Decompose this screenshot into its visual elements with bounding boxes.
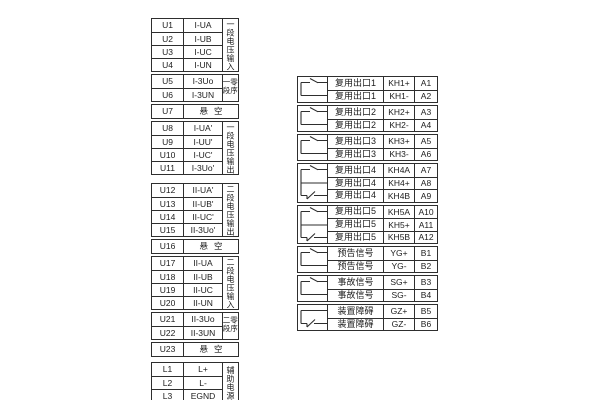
terminal-group-voltage1-in: U1I-UA U2I-UB U3I-UC U4I-UN 一段电压输入 <box>151 18 239 72</box>
terminal-row: U1I-UA <box>152 19 222 32</box>
warning-signal-group: 预告信号YG+B1 预告信号YG-B2 <box>297 246 438 273</box>
group-side-label: 辅助电源 <box>222 363 237 400</box>
signal-name: I-UU' <box>184 135 222 148</box>
terminal-row: U3I-UC <box>152 45 222 58</box>
output-label: 预告信号 <box>328 260 384 273</box>
terminal-id: A2 <box>415 90 437 103</box>
terminal-row: U15II-3Uo' <box>152 223 222 236</box>
output-label: 复用出口4 <box>328 189 384 202</box>
group-rows: 装置障碍GZ+B5 装置障碍GZ-B6 <box>328 305 437 330</box>
terminal-group-zeroseq1: U5I-3Uo U6I-3UN 一段零序 <box>151 74 239 102</box>
terminal-id: A7 <box>415 164 437 177</box>
terminal-row: 预告信号YG+B1 <box>328 247 437 260</box>
terminal-id: U8 <box>152 122 184 135</box>
output-group-3: 复用出口3KH3+A5 复用出口3KH3-A6 <box>297 134 438 161</box>
group-rows: U5I-3Uo U6I-3UN <box>152 75 222 101</box>
signal-name: I-UA <box>184 19 222 32</box>
signal-name: I-UB <box>184 32 222 45</box>
signal-code: KH5A <box>384 206 415 219</box>
terminal-id: U22 <box>152 326 184 339</box>
signal-code: KH5+ <box>384 218 415 231</box>
terminal-row: U23悬空 <box>152 343 238 356</box>
terminal-id: U11 <box>152 161 184 174</box>
terminal-id: A5 <box>415 135 437 148</box>
terminal-row: 装置障碍GZ+B5 <box>328 305 437 318</box>
signal-code: GZ- <box>384 318 415 331</box>
signal-name: II-3Uo <box>184 313 222 326</box>
terminal-id: A9 <box>415 189 437 202</box>
terminal-id: U7 <box>152 105 184 118</box>
terminal-id: U5 <box>152 75 184 88</box>
terminal-row: L3EGND <box>152 389 222 400</box>
terminal-group-spare-u23: U23悬空 <box>151 342 239 357</box>
terminal-id: U15 <box>152 223 184 236</box>
terminal-row: 复用出口5KH5AA10 <box>328 206 437 219</box>
terminal-id: U18 <box>152 270 184 283</box>
terminal-row: L2L- <box>152 376 222 389</box>
no-contact-icon <box>298 247 328 272</box>
signal-code: KH4A <box>384 164 415 177</box>
terminal-id: U4 <box>152 58 184 71</box>
side-label-text: 二段电压输出 <box>226 185 234 236</box>
group-rows: 复用出口3KH3+A5 复用出口3KH3-A6 <box>328 135 437 160</box>
signal-name: II-UA' <box>184 184 222 197</box>
signal-name: 悬空 <box>184 105 238 118</box>
output-label: 复用出口4 <box>328 164 384 177</box>
terminal-id: U12 <box>152 184 184 197</box>
terminal-row: 复用出口3KH3+A5 <box>328 135 437 148</box>
terminal-row: 事故信号SG+B3 <box>328 276 437 289</box>
signal-name: II-UC' <box>184 210 222 223</box>
fault-signal-group: 事故信号SG+B3 事故信号SG-B4 <box>297 275 438 302</box>
output-label: 事故信号 <box>328 276 384 289</box>
group-rows: U1I-UA U2I-UB U3I-UC U4I-UN <box>152 19 222 71</box>
device-failure-group: 装置障碍GZ+B5 装置障碍GZ-B6 <box>297 304 438 331</box>
output-label: 预告信号 <box>328 247 384 260</box>
side-label-text: 二段电压输入 <box>226 258 234 309</box>
no-contact-icon <box>298 77 328 102</box>
signal-name: II-UA <box>184 257 222 270</box>
group-side-label: 一段电压输入 <box>222 19 237 71</box>
signal-code: KH3+ <box>384 135 415 148</box>
terminal-id: U3 <box>152 45 184 58</box>
terminal-row: U22II-3UN <box>152 326 222 339</box>
terminal-group-voltage2-in: U17II-UA U18II-UB U19II-UC U20II-UN 二段电压… <box>151 256 239 310</box>
output-group-1: 复用出口1KH1+A1 复用出口1KH1-A2 <box>297 76 438 103</box>
terminal-row: U10I-UC' <box>152 148 222 161</box>
group-side-label: 一段电压输出 <box>222 122 237 174</box>
group-rows: U12II-UA' U13II-UB' U14II-UC' U15II-3Uo' <box>152 184 222 236</box>
terminal-row: U19II-UC <box>152 283 222 296</box>
signal-code: SG+ <box>384 276 415 289</box>
signal-code: KH2+ <box>384 106 415 119</box>
terminal-id: L1 <box>152 363 184 376</box>
signal-name: I-3Uo <box>184 75 222 88</box>
output-label: 事故信号 <box>328 289 384 302</box>
terminal-id: B3 <box>415 276 437 289</box>
signal-name: EGND <box>184 389 222 400</box>
terminal-row: U5I-3Uo <box>152 75 222 88</box>
output-label: 复用出口5 <box>328 231 384 244</box>
side-label-text: 一段电压输出 <box>226 123 234 174</box>
terminal-row: U17II-UA <box>152 257 222 270</box>
terminal-id: B6 <box>415 318 437 331</box>
signal-code: YG+ <box>384 247 415 260</box>
group-side-label: 二段零序 <box>222 313 237 339</box>
nc-contact-icon <box>298 305 328 330</box>
terminal-id: A4 <box>415 119 437 132</box>
group-rows: U17II-UA U18II-UB U19II-UC U20II-UN <box>152 257 222 309</box>
side-label-text: 一段零序 <box>223 78 238 99</box>
signal-name: 悬空 <box>184 240 238 253</box>
group-rows: U8I-UA' U9I-UU' U10I-UC' U11I-3Uo' <box>152 122 222 174</box>
signal-name: I-UN <box>184 58 222 71</box>
terminal-row: 复用出口4KH4AA7 <box>328 164 437 177</box>
terminal-group-voltage2-out: U12II-UA' U13II-UB' U14II-UC' U15II-3Uo'… <box>151 183 239 237</box>
output-label: 复用出口3 <box>328 148 384 161</box>
terminal-id: U1 <box>152 19 184 32</box>
terminal-row: U16悬空 <box>152 240 238 253</box>
terminal-id: A1 <box>415 77 437 90</box>
terminal-row: U13II-UB' <box>152 197 222 210</box>
group-rows: 复用出口5KH5AA10 复用出口5KH5+A11 复用出口5KH5BA12 <box>328 206 437 244</box>
terminal-id: A8 <box>415 177 437 190</box>
output-label: 复用出口4 <box>328 177 384 190</box>
signal-name: I-UA' <box>184 122 222 135</box>
side-label-text: 二段零序 <box>223 316 238 337</box>
output-label: 装置障碍 <box>328 305 384 318</box>
terminal-group-spare-u16: U16悬空 <box>151 239 239 254</box>
wiring-diagram: U1I-UA U2I-UB U3I-UC U4I-UN 一段电压输入 U5I-3… <box>0 0 600 400</box>
output-group-2: 复用出口2KH2+A3 复用出口2KH2-A4 <box>297 105 438 132</box>
no-contact-icon <box>298 276 328 301</box>
terminal-id: A10 <box>415 206 437 219</box>
signal-code: KH2- <box>384 119 415 132</box>
terminal-row: 复用出口5KH5BA12 <box>328 231 437 244</box>
signal-name: 悬空 <box>184 343 238 356</box>
terminal-id: U2 <box>152 32 184 45</box>
terminal-id: U23 <box>152 343 184 356</box>
side-label-text: 辅助电源 <box>226 366 234 400</box>
signal-code: KH1+ <box>384 77 415 90</box>
output-label: 复用出口3 <box>328 135 384 148</box>
terminal-row: 复用出口1KH1-A2 <box>328 90 437 103</box>
terminal-row: 复用出口4KH4+A8 <box>328 177 437 190</box>
signal-code: KH5B <box>384 231 415 244</box>
signal-name: I-UC' <box>184 148 222 161</box>
terminal-row: U4I-UN <box>152 58 222 71</box>
terminal-row: 事故信号SG-B4 <box>328 289 437 302</box>
terminal-id: L2 <box>152 376 184 389</box>
signal-name: II-UB <box>184 270 222 283</box>
terminal-id: A12 <box>415 231 437 244</box>
terminal-id: A3 <box>415 106 437 119</box>
no-contact-icon <box>298 135 328 160</box>
terminal-id: A6 <box>415 148 437 161</box>
terminal-id: B1 <box>415 247 437 260</box>
terminal-id: U19 <box>152 283 184 296</box>
signal-name: I-3UN <box>184 88 222 101</box>
group-side-label: 二段电压输出 <box>222 184 237 236</box>
terminal-row: 装置障碍GZ-B6 <box>328 318 437 331</box>
signal-name: II-3Uo' <box>184 223 222 236</box>
signal-name: L- <box>184 376 222 389</box>
group-rows: U21II-3Uo U22II-3UN <box>152 313 222 339</box>
group-rows: 复用出口4KH4AA7 复用出口4KH4+A8 复用出口4KH4BA9 <box>328 164 437 202</box>
output-label: 复用出口1 <box>328 90 384 103</box>
group-rows: 复用出口2KH2+A3 复用出口2KH2-A4 <box>328 106 437 131</box>
group-rows: U23悬空 <box>152 343 238 356</box>
terminal-row: 预告信号YG-B2 <box>328 260 437 273</box>
terminal-group-aux-power: L1L+ L2L- L3EGND 辅助电源 <box>151 362 239 400</box>
terminal-id: U6 <box>152 88 184 101</box>
group-side-label: 二段电压输入 <box>222 257 237 309</box>
signal-name: II-UC <box>184 283 222 296</box>
group-rows: 复用出口1KH1+A1 复用出口1KH1-A2 <box>328 77 437 102</box>
terminal-id: U10 <box>152 148 184 161</box>
terminal-row: U18II-UB <box>152 270 222 283</box>
terminal-row: U14II-UC' <box>152 210 222 223</box>
signal-code: KH3- <box>384 148 415 161</box>
terminal-id: U14 <box>152 210 184 223</box>
terminal-group-spare-u7: U7悬空 <box>151 104 239 119</box>
signal-name: II-UN <box>184 296 222 309</box>
terminal-row: U12II-UA' <box>152 184 222 197</box>
group-rows: 预告信号YG+B1 预告信号YG-B2 <box>328 247 437 272</box>
signal-name: I-3Uo' <box>184 161 222 174</box>
changeover-contact-icon <box>298 164 328 202</box>
signal-code: KH4B <box>384 189 415 202</box>
terminal-id: A11 <box>415 218 437 231</box>
terminal-row: 复用出口2KH2-A4 <box>328 119 437 132</box>
group-side-label: 一段零序 <box>222 75 237 101</box>
output-label: 复用出口5 <box>328 206 384 219</box>
signal-code: SG- <box>384 289 415 302</box>
signal-code: KH1- <box>384 90 415 103</box>
terminal-row: L1L+ <box>152 363 222 376</box>
signal-code: KH4+ <box>384 177 415 190</box>
signal-name: II-3UN <box>184 326 222 339</box>
terminal-id: U21 <box>152 313 184 326</box>
terminal-group-zeroseq2: U21II-3Uo U22II-3UN 二段零序 <box>151 312 239 340</box>
terminal-row: 复用出口4KH4BA9 <box>328 189 437 202</box>
terminal-row: 复用出口3KH3-A6 <box>328 148 437 161</box>
terminal-group-voltage1-out: U8I-UA' U9I-UU' U10I-UC' U11I-3Uo' 一段电压输… <box>151 121 239 175</box>
output-group-5: 复用出口5KH5AA10 复用出口5KH5+A11 复用出口5KH5BA12 <box>297 205 438 245</box>
group-rows: L1L+ L2L- L3EGND <box>152 363 222 400</box>
terminal-row: 复用出口1KH1+A1 <box>328 77 437 90</box>
signal-name: L+ <box>184 363 222 376</box>
terminal-id: B4 <box>415 289 437 302</box>
signal-name: II-UB' <box>184 197 222 210</box>
output-group-4: 复用出口4KH4AA7 复用出口4KH4+A8 复用出口4KH4BA9 <box>297 163 438 203</box>
group-rows: U7悬空 <box>152 105 238 118</box>
terminal-row: U9I-UU' <box>152 135 222 148</box>
terminal-id: L3 <box>152 389 184 400</box>
no-contact-icon <box>298 106 328 131</box>
output-label: 复用出口2 <box>328 119 384 132</box>
terminal-row: U7悬空 <box>152 105 238 118</box>
output-label: 复用出口2 <box>328 106 384 119</box>
terminal-row: U2I-UB <box>152 32 222 45</box>
terminal-id: B5 <box>415 305 437 318</box>
side-label-text: 一段电压输入 <box>226 20 234 71</box>
signal-code: YG- <box>384 260 415 273</box>
changeover-contact-icon <box>298 206 328 244</box>
output-label: 装置障碍 <box>328 318 384 331</box>
group-rows: 事故信号SG+B3 事故信号SG-B4 <box>328 276 437 301</box>
group-rows: U16悬空 <box>152 240 238 253</box>
terminal-id: U13 <box>152 197 184 210</box>
terminal-id: U9 <box>152 135 184 148</box>
terminal-row: U21II-3Uo <box>152 313 222 326</box>
signal-code: GZ+ <box>384 305 415 318</box>
terminal-id: U20 <box>152 296 184 309</box>
terminal-id: U17 <box>152 257 184 270</box>
terminal-row: U6I-3UN <box>152 88 222 101</box>
left-terminal-table: U1I-UA U2I-UB U3I-UC U4I-UN 一段电压输入 U5I-3… <box>151 18 239 400</box>
signal-name: I-UC <box>184 45 222 58</box>
terminal-row: U8I-UA' <box>152 122 222 135</box>
output-label: 复用出口1 <box>328 77 384 90</box>
output-label: 复用出口5 <box>328 218 384 231</box>
terminal-row: U20II-UN <box>152 296 222 309</box>
right-terminal-table: 复用出口1KH1+A1 复用出口1KH1-A2 复用出口2KH2+A3 复用出口… <box>297 76 438 333</box>
terminal-row: 复用出口2KH2+A3 <box>328 106 437 119</box>
terminal-row: 复用出口5KH5+A11 <box>328 218 437 231</box>
terminal-row: U11I-3Uo' <box>152 161 222 174</box>
terminal-id: U16 <box>152 240 184 253</box>
terminal-id: B2 <box>415 260 437 273</box>
